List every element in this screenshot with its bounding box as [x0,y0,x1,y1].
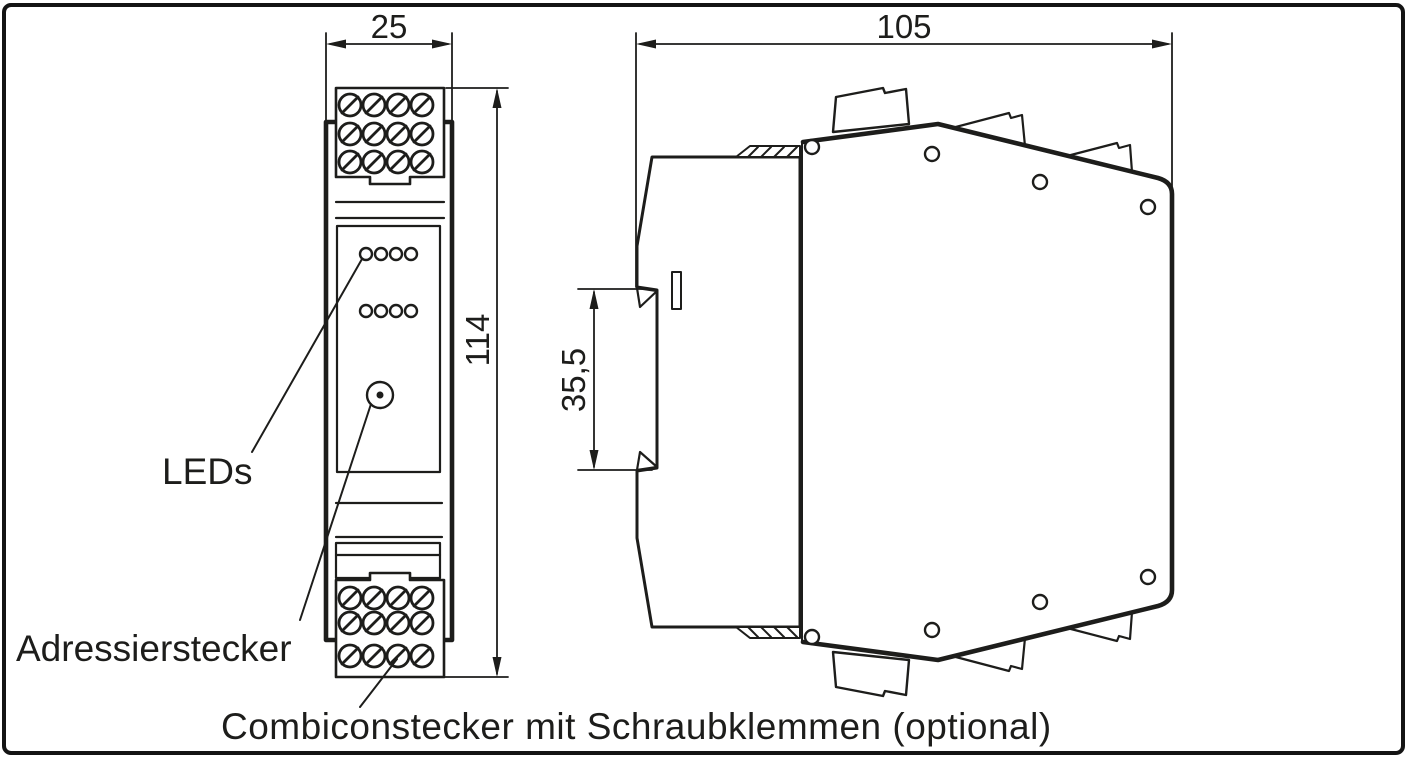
technical-drawing: 25 105 114 35,5 LEDs Adressierstecker Co… [0,0,1409,759]
label-combicon: Combiconstecker mit Schraubklemmen (opti… [221,708,1052,745]
front-plate-profile [637,157,800,627]
hatch-bottom [736,627,800,638]
dim-din-rail-value: 35,5 [556,320,592,440]
din-claw-bottom [637,452,657,470]
side-top-terminal-block [833,88,909,132]
label-addressing-connector: Adressierstecker [16,630,292,667]
front-panel [337,226,440,472]
side-view [578,33,1172,696]
dim-front-height-value: 114 [460,280,496,400]
front-plate-slot [672,272,681,309]
label-leds: LEDs [162,453,252,490]
hatch-top [736,146,800,157]
din-claw-top [637,288,657,307]
dim-side-width-value: 105 [636,10,1172,43]
housing-silhouette [803,124,1172,660]
dim-front-width-value: 25 [326,10,452,43]
side-bottom-terminal-block [833,652,909,696]
